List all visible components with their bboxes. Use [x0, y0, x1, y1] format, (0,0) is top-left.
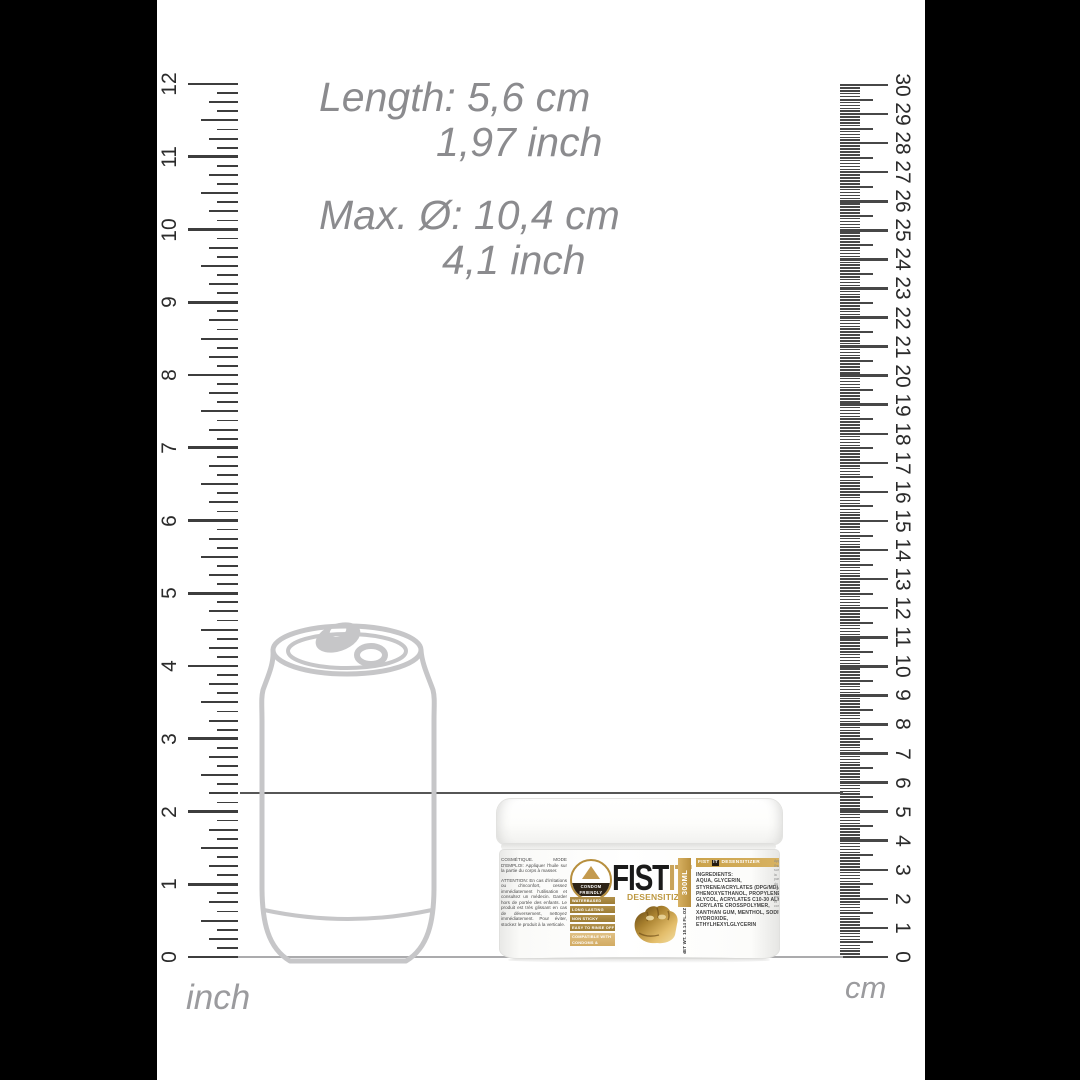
- cm-tick: [840, 700, 860, 702]
- cm-tick: [840, 352, 860, 354]
- inch-tick: [217, 256, 238, 258]
- cm-tick: [840, 328, 860, 330]
- cm-tick: [840, 735, 860, 737]
- cm-tick: [840, 116, 860, 118]
- cm-tick: [840, 703, 860, 705]
- inch-number: 8: [157, 357, 183, 393]
- inch-tick: [209, 356, 238, 358]
- cm-tick: [840, 898, 888, 901]
- cm-tick: [840, 788, 860, 790]
- cm-tick: [840, 497, 860, 499]
- cm-tick: [840, 494, 860, 496]
- inch-tick: [209, 829, 238, 831]
- inch-tick: [217, 947, 238, 949]
- cm-tick: [840, 105, 860, 107]
- cm-tick: [840, 892, 860, 894]
- inch-tick: [188, 665, 238, 668]
- cm-tick: [840, 863, 860, 865]
- cm-tick: [840, 538, 860, 540]
- cm-tick: [840, 810, 888, 813]
- inch-tick: [217, 438, 238, 440]
- inch-tick: [201, 629, 238, 631]
- cm-tick: [840, 125, 860, 127]
- cm-tick: [840, 552, 860, 554]
- cm-tick: [840, 154, 860, 156]
- inch-tick: [209, 247, 238, 249]
- cm-tick: [840, 721, 860, 723]
- cm-tick: [840, 889, 860, 891]
- cm-tick: [840, 299, 860, 301]
- inch-tick: [217, 729, 238, 731]
- cm-tick: [840, 227, 860, 229]
- feature-chip: EASY TO RINSE OFF: [570, 924, 615, 931]
- cm-tick: [840, 189, 860, 191]
- badge-line2: FRIENDLY: [572, 890, 610, 896]
- cm-tick: [840, 616, 860, 618]
- condom-friendly-badge: CONDOM FRIENDLY: [570, 859, 612, 901]
- cm-tick: [840, 692, 860, 694]
- cm-tick: [840, 924, 860, 926]
- cm-tick: [840, 950, 860, 952]
- inch-tick: [217, 511, 238, 513]
- cm-tick: [840, 480, 860, 482]
- cm-tick: [840, 945, 860, 947]
- inch-tick: [217, 547, 238, 549]
- cm-tick: [840, 916, 860, 918]
- cm-tick: [840, 520, 888, 523]
- cm-tick: [840, 683, 860, 685]
- cm-tick: [840, 180, 860, 182]
- header-it: IT: [712, 860, 720, 866]
- cm-tick: [840, 378, 860, 380]
- cm-tick: [840, 433, 888, 436]
- cm-tick: [840, 186, 873, 188]
- cm-tick: [840, 102, 860, 104]
- length-inch-text: 1,97 inch: [436, 119, 602, 166]
- inch-tick: [201, 338, 238, 340]
- cm-tick: [840, 918, 860, 920]
- cm-tick: [840, 744, 860, 746]
- cm-tick: [840, 596, 860, 598]
- cm-tick: [840, 622, 873, 624]
- cm-tick: [840, 84, 888, 87]
- cm-tick: [840, 174, 860, 176]
- inch-tick: [188, 883, 238, 886]
- inch-tick: [209, 429, 238, 431]
- cm-tick: [840, 723, 888, 726]
- cm-tick: [840, 904, 860, 906]
- cm-tick: [840, 820, 860, 822]
- inch-tick: [217, 820, 238, 822]
- cm-tick: [840, 796, 873, 798]
- cm-tick: [840, 854, 873, 856]
- inch-tick: [188, 519, 238, 522]
- cm-tick: [840, 471, 860, 473]
- cm-tick: [840, 131, 860, 133]
- cm-tick: [840, 802, 860, 804]
- inch-tick: [209, 574, 238, 576]
- cm-tick: [840, 860, 860, 862]
- cm-tick: [840, 142, 888, 145]
- cm-tick: [840, 500, 860, 502]
- inch-tick: [201, 847, 238, 849]
- cm-tick: [840, 192, 860, 194]
- ingredients-panel: FIST IT DESENSITIZER INGREDIENTS: AQUA, …: [696, 858, 780, 928]
- cm-tick: [840, 334, 860, 336]
- cm-tick: [840, 96, 860, 98]
- inch-tick: [217, 929, 238, 931]
- cm-tick: [840, 137, 860, 139]
- cm-tick: [840, 247, 860, 249]
- cm-tick: [840, 296, 860, 298]
- cm-tick: [840, 366, 860, 368]
- usage-instructions-french: COSMÉTIQUE. MODE D'EMPLOI: Appliquer l'h…: [501, 857, 567, 931]
- cm-tick: [840, 636, 888, 639]
- cm-tick: [840, 363, 860, 365]
- inch-tick: [217, 911, 238, 913]
- inch-tick: [188, 155, 238, 158]
- cm-tick: [840, 119, 860, 121]
- cm-tick: [840, 424, 860, 426]
- cm-tick: [840, 657, 860, 659]
- inch-tick: [217, 401, 238, 403]
- inch-tick: [188, 83, 238, 86]
- cm-ruler: 0123456789101112131415161718192021222324…: [840, 0, 890, 1080]
- cm-tick: [840, 436, 860, 438]
- inch-number: 5: [157, 575, 183, 611]
- cm-tick: [840, 491, 888, 494]
- cm-tick: [840, 907, 860, 909]
- cm-tick: [840, 157, 873, 159]
- cm-tick: [840, 625, 860, 627]
- inch-tick: [188, 228, 238, 231]
- cm-tick: [840, 825, 873, 827]
- net-weight: NET WT. 10.14 FL.OZ: [677, 908, 692, 954]
- cm-tick: [840, 355, 860, 357]
- cm-tick: [840, 401, 860, 403]
- cm-tick: [840, 814, 860, 816]
- cm-tick: [840, 799, 860, 801]
- inch-tick: [217, 711, 238, 713]
- cm-tick: [840, 253, 860, 255]
- cm-tick: [840, 791, 860, 793]
- cm-tick: [840, 523, 860, 525]
- cm-tick: [840, 846, 860, 848]
- cm-tick: [840, 195, 860, 197]
- inch-tick: [209, 938, 238, 940]
- cm-tick: [840, 668, 860, 670]
- cm-tick: [840, 869, 888, 872]
- cm-tick: [840, 232, 860, 234]
- cm-tick: [840, 834, 860, 836]
- cm-tick: [840, 878, 860, 880]
- cm-tick: [840, 369, 860, 371]
- cm-tick: [840, 817, 860, 819]
- cm-tick: [840, 139, 860, 141]
- inch-tick: [217, 747, 238, 749]
- cm-tick: [840, 374, 888, 377]
- cm-tick: [840, 584, 860, 586]
- cm-tick: [840, 445, 860, 447]
- volume-text: 300ML: [680, 870, 689, 895]
- cm-tick: [840, 122, 860, 124]
- cm-tick: [840, 258, 888, 261]
- inch-tick: [217, 802, 238, 804]
- cm-tick: [840, 526, 860, 528]
- feature-chip-list: WATERBASEDLONG LASTINGNON STICKYEASY TO …: [570, 897, 615, 948]
- cm-tick: [840, 535, 873, 537]
- cm-tick: [840, 762, 860, 764]
- cm-tick: [840, 384, 860, 386]
- cm-tick: [840, 453, 860, 455]
- cm-tick: [840, 752, 888, 755]
- cm-tick: [840, 177, 860, 179]
- cm-tick: [840, 715, 860, 717]
- cm-tick: [840, 485, 860, 487]
- cm-tick: [840, 331, 873, 333]
- inch-tick: [217, 892, 238, 894]
- cm-tick: [840, 561, 860, 563]
- cm-tick: [840, 256, 860, 258]
- cm-tick: [840, 360, 873, 362]
- cm-tick: [840, 712, 860, 714]
- cm-tick: [840, 956, 888, 959]
- cm-tick: [840, 564, 873, 566]
- cm-tick: [840, 651, 873, 653]
- cm-tick: [840, 282, 860, 284]
- cm-tick: [840, 314, 860, 316]
- inch-tick: [209, 901, 238, 903]
- inch-tick: [217, 329, 238, 331]
- inch-tick: [217, 692, 238, 694]
- cm-tick: [840, 671, 860, 673]
- inch-tick: [188, 737, 238, 740]
- inch-tick: [217, 529, 238, 531]
- cm-tick: [840, 447, 873, 449]
- inch-tick: [217, 201, 238, 203]
- cm-tick: [840, 250, 860, 252]
- cm-tick: [840, 706, 860, 708]
- cm-tick: [840, 875, 860, 877]
- cm-tick: [840, 410, 860, 412]
- inch-tick: [209, 720, 238, 722]
- inch-tick: [201, 556, 238, 558]
- cm-tick: [840, 773, 860, 775]
- cm-unit-label: cm: [845, 970, 886, 1006]
- inch-tick: [217, 129, 238, 131]
- cm-tick: [840, 482, 860, 484]
- label-edge-text: Appliquer l'huile sur la partie du corps…: [774, 859, 780, 911]
- inch-tick: [217, 292, 238, 294]
- inch-number: 6: [157, 503, 183, 539]
- inch-tick: [209, 319, 238, 321]
- cm-tick: [840, 843, 860, 845]
- cm-tick: [840, 294, 860, 296]
- inch-number: 7: [157, 430, 183, 466]
- inch-tick: [217, 310, 238, 312]
- inch-tick: [217, 220, 238, 222]
- cm-tick: [840, 570, 860, 572]
- cm-tick: [840, 578, 888, 581]
- cm-tick: [840, 895, 860, 897]
- cm-tick: [840, 628, 860, 630]
- cm-tick: [840, 709, 873, 711]
- cm-tick: [840, 276, 860, 278]
- cm-tick: [840, 764, 860, 766]
- inch-number: 0: [157, 939, 183, 975]
- inch-tick: [209, 865, 238, 867]
- inch-tick: [217, 92, 238, 94]
- cm-tick: [840, 680, 873, 682]
- cm-tick: [840, 163, 860, 165]
- inch-tick: [217, 274, 238, 276]
- cm-tick: [840, 262, 860, 264]
- cm-tick: [840, 546, 860, 548]
- inch-tick: [217, 383, 238, 385]
- cm-tick: [840, 901, 860, 903]
- cm-tick: [840, 302, 873, 304]
- product-dimension-diagram: Length: 5,6 cm 1,97 inch Max. Ø: 10,4 cm…: [0, 0, 1080, 1080]
- cm-tick: [840, 200, 888, 203]
- cm-tick: [840, 689, 860, 691]
- cm-tick: [840, 732, 860, 734]
- jar-reflection: [508, 957, 770, 963]
- cm-tick: [840, 90, 860, 92]
- cm-tick: [840, 883, 873, 885]
- inch-tick: [209, 465, 238, 467]
- cm-tick: [840, 110, 860, 112]
- cm-tick: [840, 503, 860, 505]
- jar-lid: [496, 798, 783, 845]
- inch-tick: [201, 483, 238, 485]
- cm-tick: [840, 488, 860, 490]
- cm-tick: [840, 212, 860, 214]
- cm-tick: [840, 694, 888, 697]
- cm-tick: [840, 221, 860, 223]
- cm-tick: [840, 108, 860, 110]
- cm-tick: [840, 910, 860, 912]
- cm-tick: [840, 770, 860, 772]
- cm-tick: [840, 605, 860, 607]
- cm-tick: [840, 921, 860, 923]
- inch-tick: [217, 110, 238, 112]
- inch-tick: [209, 392, 238, 394]
- inch-tick: [201, 265, 238, 267]
- cm-tick: [840, 476, 873, 478]
- cm-tick: [840, 738, 873, 740]
- cm-tick: [840, 741, 860, 743]
- cm-tick: [840, 529, 860, 531]
- cm-tick: [840, 823, 860, 825]
- cm-tick: [840, 407, 860, 409]
- header-fist: FIST: [698, 860, 710, 865]
- cm-tick: [840, 316, 888, 319]
- cm-tick: [840, 930, 860, 932]
- header-desensitizer: DESENSITIZER: [721, 860, 760, 865]
- cm-tick: [840, 727, 860, 729]
- cm-tick: [840, 238, 860, 240]
- inch-tick: [201, 119, 238, 121]
- inch-unit-label: inch: [186, 978, 250, 1018]
- cm-tick: [840, 87, 860, 89]
- cm-tick: [840, 218, 860, 220]
- inch-tick: [217, 838, 238, 840]
- cm-tick: [840, 326, 860, 328]
- cm-tick: [840, 287, 888, 290]
- inch-tick: [217, 874, 238, 876]
- inch-number: 11: [157, 139, 183, 175]
- inch-tick: [201, 774, 238, 776]
- cm-tick: [840, 148, 860, 150]
- cm-tick: [840, 145, 860, 147]
- cm-tick: [840, 779, 860, 781]
- cm-tick: [840, 793, 860, 795]
- cm-tick: [840, 857, 860, 859]
- cm-tick: [840, 718, 860, 720]
- cm-tick: [840, 241, 860, 243]
- cm-tick: [840, 273, 873, 275]
- diameter-cm-text: Max. Ø: 10,4 cm: [319, 192, 620, 239]
- cm-tick: [840, 509, 860, 511]
- cm-tick: [840, 427, 860, 429]
- inch-tick: [209, 610, 238, 612]
- cm-tick: [840, 430, 860, 432]
- cm-tick: [840, 305, 860, 307]
- inch-tick: [217, 474, 238, 476]
- cm-tick: [840, 505, 873, 507]
- cm-tick: [840, 215, 873, 217]
- ingredients-header-bar: FIST IT DESENSITIZER: [696, 858, 780, 867]
- inch-tick: [201, 701, 238, 703]
- cm-tick: [840, 468, 860, 470]
- cm-tick: [840, 607, 888, 610]
- cm-tick: [840, 340, 860, 342]
- feature-chip-compatible: COMPATIBLE WITH CONDOMS & GLOVES: [570, 933, 615, 946]
- cm-tick: [840, 357, 860, 359]
- cm-tick: [840, 781, 888, 784]
- inch-tick: [188, 374, 238, 377]
- inch-tick: [217, 620, 238, 622]
- cm-tick: [840, 442, 860, 444]
- inch-tick: [217, 856, 238, 858]
- cm-tick: [840, 320, 860, 322]
- inch-tick: [217, 765, 238, 767]
- inch-tick: [201, 192, 238, 194]
- inch-tick: [217, 783, 238, 785]
- cm-tick: [840, 459, 860, 461]
- cm-tick: [840, 474, 860, 476]
- pyramid-icon: [582, 866, 600, 879]
- cm-tick: [840, 349, 860, 351]
- cm-tick: [840, 872, 860, 874]
- cm-tick: [840, 541, 860, 543]
- cm-tick: [840, 264, 860, 266]
- inch-tick: [188, 446, 238, 449]
- cm-tick: [840, 183, 860, 185]
- inch-tick: [217, 147, 238, 149]
- cm-tick: [840, 403, 888, 406]
- cm-tick: [840, 323, 860, 325]
- inch-tick: [217, 656, 238, 658]
- cm-tick: [840, 392, 860, 394]
- cm-tick: [840, 555, 860, 557]
- cm-tick: [840, 698, 860, 700]
- gold-fist-image: [628, 898, 682, 948]
- feature-chip: NON STICKY: [570, 915, 615, 922]
- cm-tick: [840, 639, 860, 641]
- inch-tick: [217, 165, 238, 167]
- cm-tick: [840, 660, 860, 662]
